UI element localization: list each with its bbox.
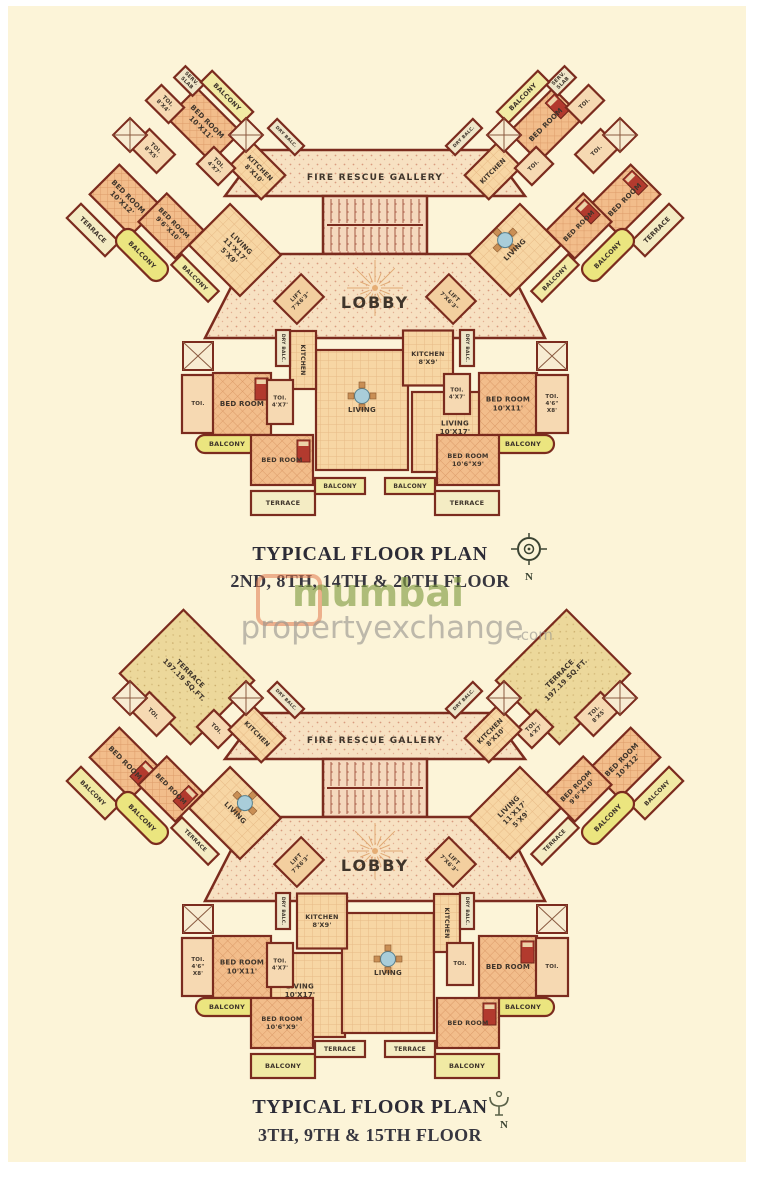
- balcony: BALCONY: [492, 998, 554, 1016]
- shaft: [183, 905, 213, 933]
- dry-balcony: DRY BALC.: [460, 893, 474, 929]
- living-room: LIVING: [316, 350, 408, 470]
- bed-room: BED ROOM10'X11': [213, 936, 271, 998]
- floor-plan-canvas: FIRE RESCUE GALLERYLOBBYLIFT7'X6'3"LIFT7…: [0, 0, 780, 1186]
- toilet: TOI.4'X7': [267, 380, 293, 424]
- svg-text:BALCONY: BALCONY: [505, 440, 541, 448]
- toilet: TOI.4'6"X8': [536, 375, 568, 433]
- dry-balcony: DRY BALC.: [276, 893, 290, 929]
- svg-text:BED ROOM: BED ROOM: [220, 400, 264, 408]
- watermark-domain-text: propertyexchange: [240, 610, 523, 646]
- svg-text:DRY BALC.: DRY BALC.: [281, 334, 287, 362]
- plan-upper-title-line1: TYPICAL FLOOR PLAN: [252, 543, 487, 565]
- svg-text:TERRACE: TERRACE: [324, 1046, 356, 1053]
- svg-text:LOBBY: LOBBY: [341, 856, 409, 875]
- balcony: BALCONY: [196, 998, 258, 1016]
- svg-text:TOI.4'X7': TOI.4'X7': [449, 388, 465, 401]
- svg-text:TERRACE: TERRACE: [266, 499, 301, 507]
- svg-text:TERRACE: TERRACE: [394, 1046, 426, 1053]
- svg-text:LOBBY: LOBBY: [341, 293, 409, 312]
- terrace: TERRACE: [315, 1041, 365, 1057]
- svg-text:BED ROOM10'6"X9': BED ROOM10'6"X9': [447, 452, 488, 468]
- toilet: TOI.4'X7': [444, 374, 470, 414]
- svg-text:TOI.4'X7': TOI.4'X7': [272, 396, 288, 409]
- svg-text:DRY BALC.: DRY BALC.: [465, 334, 471, 362]
- plan-lower-title-line2: 3TH, 9TH & 15TH FLOOR: [258, 1125, 483, 1145]
- shaft: [537, 342, 567, 370]
- svg-text:BED ROOM: BED ROOM: [486, 963, 530, 971]
- svg-text:BALCONY: BALCONY: [505, 1003, 541, 1011]
- svg-text:KITCHEN: KITCHEN: [300, 345, 307, 376]
- staircase: [323, 759, 427, 817]
- bed-room: BED ROOM10'6"X9': [251, 998, 313, 1048]
- balcony: BALCONY: [492, 435, 554, 453]
- terrace: TERRACE: [435, 491, 499, 515]
- svg-text:DRY BALC.: DRY BALC.: [281, 897, 287, 925]
- balcony: BALCONY: [196, 435, 258, 453]
- balcony: BALCONY: [315, 478, 365, 494]
- plan-lower-title-line1: TYPICAL FLOOR PLAN: [252, 1096, 487, 1118]
- svg-text:BALCONY: BALCONY: [393, 483, 427, 490]
- svg-text:TOI.4'X7': TOI.4'X7': [272, 959, 288, 972]
- terrace: TERRACE: [251, 491, 315, 515]
- compass-north-label: N: [525, 571, 533, 583]
- svg-text:BED ROOM10'6"X9': BED ROOM10'6"X9': [261, 1015, 302, 1031]
- svg-text:TOI.4'6"X8': TOI.4'6"X8': [545, 394, 558, 414]
- toilet: TOI.: [536, 938, 568, 996]
- svg-text:FIRE RESCUE GALLERY: FIRE RESCUE GALLERY: [307, 736, 443, 746]
- bed-room: BED ROOM: [251, 435, 313, 485]
- watermark-brand-text: mumbai: [292, 571, 464, 615]
- svg-text:TERRACE: TERRACE: [450, 499, 485, 507]
- kitchen: KITCHEN8'X9': [297, 894, 347, 949]
- bed-room: BED ROOM: [437, 998, 499, 1048]
- dry-balcony: DRY BALC.: [276, 330, 290, 366]
- toilet: TOI.4'X7': [267, 943, 293, 987]
- staircase: [323, 196, 427, 254]
- watermark-domain-suffix: .com: [516, 626, 553, 644]
- svg-text:TOI.: TOI.: [191, 401, 204, 407]
- svg-text:BALCONY: BALCONY: [209, 1003, 245, 1011]
- bed-room: BED ROOM10'X11': [479, 373, 537, 435]
- bed-room: BED ROOM: [213, 373, 271, 435]
- toilet: TOI.: [447, 943, 473, 985]
- compass-north-label: N: [500, 1119, 508, 1131]
- toilet: TOI.: [182, 375, 214, 433]
- svg-text:FIRE RESCUE GALLERY: FIRE RESCUE GALLERY: [307, 173, 443, 183]
- svg-text:BALCONY: BALCONY: [449, 1062, 485, 1070]
- shaft: [183, 342, 213, 370]
- svg-text:LIVING: LIVING: [374, 969, 402, 977]
- svg-text:DRY BALC.: DRY BALC.: [465, 897, 471, 925]
- bed-room: BED ROOM: [479, 936, 537, 998]
- dry-balcony: DRY BALC.: [460, 330, 474, 366]
- svg-text:KITCHEN: KITCHEN: [444, 908, 451, 939]
- svg-text:TOI.: TOI.: [545, 964, 558, 970]
- svg-text:BALCONY: BALCONY: [209, 440, 245, 448]
- shaft: [537, 905, 567, 933]
- bed-room: BED ROOM10'6"X9': [437, 435, 499, 485]
- svg-text:LIVING: LIVING: [348, 406, 376, 414]
- toilet: TOI.4'6"X8': [182, 938, 214, 996]
- balcony: BALCONY: [251, 1054, 315, 1078]
- svg-text:BED ROOM: BED ROOM: [447, 1019, 488, 1027]
- svg-text:TOI.: TOI.: [453, 961, 466, 967]
- balcony: BALCONY: [385, 478, 435, 494]
- floor-plan-page: FIRE RESCUE GALLERYLOBBYLIFT7'X6'3"LIFT7…: [0, 0, 780, 1186]
- svg-text:TOI.4'6"X8': TOI.4'6"X8': [191, 957, 204, 977]
- svg-text:BALCONY: BALCONY: [265, 1062, 301, 1070]
- svg-text:BED ROOM: BED ROOM: [261, 456, 302, 464]
- svg-text:BALCONY: BALCONY: [323, 483, 357, 490]
- living-room: LIVING: [342, 913, 434, 1033]
- balcony: BALCONY: [435, 1054, 499, 1078]
- terrace: TERRACE: [385, 1041, 435, 1057]
